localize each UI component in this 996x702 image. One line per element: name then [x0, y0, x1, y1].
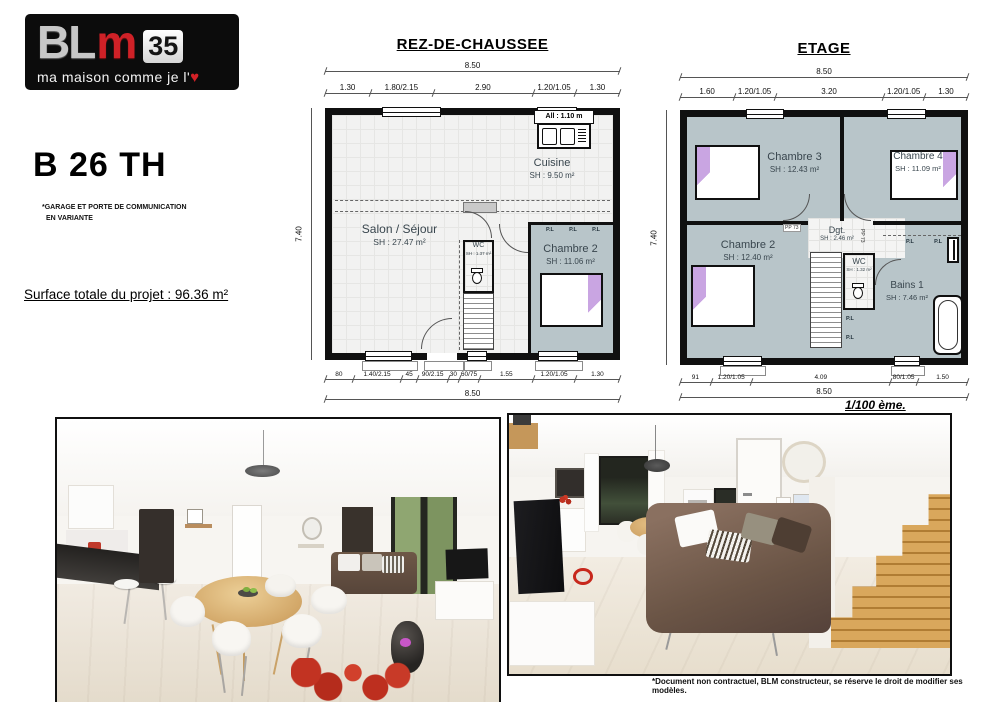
et-overall-bottom-dim: 8.50: [680, 384, 968, 398]
window: [887, 109, 926, 119]
gf-chambre2-label: Chambre 2 SH : 11.06 m²: [528, 243, 613, 267]
etage-plan: Chambre 3 SH : 12.43 m² Chambre 4 SH : 1…: [680, 110, 968, 365]
chair: [311, 586, 346, 615]
window: [365, 351, 412, 361]
et-staircase: [810, 252, 842, 348]
et-chambre2-label: Chambre 2 SH : 12.40 m²: [692, 239, 804, 263]
et-bains-label: Bains 1 SH : 7.46 m²: [867, 280, 947, 302]
placard-dashed-line: [883, 235, 961, 236]
gf-placard-labels: P.L P.L P.L: [546, 227, 600, 233]
model-note-line2: EN VARIANTE: [42, 213, 187, 224]
gf-dashed-line: [335, 200, 610, 201]
bed-pillow: [588, 275, 601, 325]
ground-floor-title: REZ-DE-CHAUSSEE: [325, 36, 620, 53]
window: [746, 109, 784, 119]
et-placard-labels: P.L P.L: [906, 239, 942, 245]
tv-cabinet: [435, 581, 494, 620]
placard-label: P.L: [846, 316, 854, 322]
lamp-wire: [655, 425, 656, 461]
et-wc-label: WC SH : 1.32 m²: [843, 257, 875, 273]
speaker-light: [400, 638, 411, 647]
et-bottom-dims: 91 1.20/1.05 4.09 80/1.05 1.50: [680, 369, 968, 383]
tv-cabinet: [509, 601, 595, 665]
logo-35-badge: 35: [143, 30, 183, 63]
curtain: [584, 453, 599, 533]
door-arc: [465, 211, 492, 238]
et-top-dims: 1.60 1.20/1.05 3.20 1.20/1.05 1.30: [680, 84, 968, 98]
kitchen-sink-icon: [537, 123, 591, 149]
white-door: [232, 505, 263, 587]
toilet-icon: [852, 283, 865, 300]
fruit: [250, 588, 257, 593]
door-handle: [743, 493, 752, 496]
wall: [873, 221, 961, 225]
kitchen-cabinet: [68, 485, 114, 530]
dark-door: [139, 509, 174, 583]
gf-cuisine-label: Cuisine SH : 9.50 m²: [492, 157, 612, 181]
photo-living-kitchen: [55, 417, 501, 702]
toilet-icon: [471, 268, 484, 285]
bed: [691, 265, 755, 327]
scale-label: 1/100 ème.: [845, 398, 906, 412]
window: [382, 107, 441, 117]
etage-title: ETAGE: [680, 40, 968, 57]
red-headphones: [573, 568, 593, 585]
gf-overall-bottom-dim: 8.50: [325, 386, 620, 400]
door-arc: [844, 194, 871, 221]
window: [894, 356, 920, 366]
wall-shelf: [509, 423, 538, 449]
bed-pillow: [693, 267, 706, 325]
door-label: PP 73: [859, 229, 865, 243]
door-label: PP 73: [783, 224, 801, 232]
logo-wordmark: BL m 35: [37, 19, 227, 63]
window: [723, 356, 762, 366]
small-window: [467, 351, 487, 361]
tv: [445, 548, 488, 579]
logo-m-letter: m: [96, 22, 137, 63]
gf-overall-top-dim: 8.50: [325, 58, 620, 72]
entrance-door-opening: [427, 353, 457, 361]
picture-frame: [187, 509, 202, 524]
entrance-door-arc: [421, 318, 452, 349]
chair: [265, 574, 296, 597]
photo-living-staircase: [507, 413, 952, 676]
disclaimer-text: *Document non contractuel, BLM construct…: [652, 677, 996, 695]
ground-floor-plan: Cuisine SH : 9.50 m² Salon / Séjour SH :…: [325, 108, 620, 360]
bed-pillow: [697, 147, 710, 198]
red-flowers: [291, 658, 415, 702]
bedroom-window: [538, 351, 578, 361]
chair: [212, 621, 252, 655]
lamp-wire: [263, 430, 264, 467]
et-height-dim: 7.40: [654, 110, 667, 365]
model-title: B 26 TH: [33, 146, 167, 185]
allege-label: All : 1.10 m: [534, 110, 594, 124]
gf-top-dims: 1.30 1.80/2.15 2.90 1.20/1.05 1.30: [325, 80, 620, 94]
chair: [170, 596, 205, 627]
ceiling-lamp: [644, 459, 670, 472]
door-arc: [783, 194, 810, 221]
dark-window: [599, 456, 649, 525]
radiator-icon: [947, 237, 959, 263]
sofa-cushion: [362, 554, 382, 571]
surface-total: Surface totale du projet : 96.36 m²: [24, 287, 228, 302]
model-note: *GARAGE ET PORTE DE COMMUNICATION EN VAR…: [42, 202, 187, 224]
chair: [282, 614, 322, 648]
model-note-line1: *GARAGE ET PORTE DE COMMUNICATION: [42, 202, 187, 213]
gf-dashed-wall: [459, 240, 460, 350]
wall-shelf: [185, 524, 212, 527]
door-arc: [499, 224, 528, 253]
logo-bl-letters: BL: [37, 22, 94, 63]
et-overall-top-dim: 8.50: [680, 64, 968, 78]
wall-mirror: [302, 517, 322, 540]
et-chambre3-label: Chambre 3 SH : 12.43 m²: [737, 151, 852, 175]
gf-wc-label: WC SH : 1.37 m²: [463, 242, 494, 256]
bathtub-icon: [933, 295, 963, 355]
fruit: [243, 587, 250, 592]
sofa-cushion: [338, 554, 360, 571]
shelf-decor: [513, 415, 531, 425]
et-chambre4-label: Chambre 4 SH : 11.09 m²: [875, 151, 961, 173]
brochure-page: BL m 35 ma maison comme je l'♥ B 26 TH *…: [0, 0, 996, 702]
bar-stool: [114, 579, 138, 589]
gf-bottom-dims: 80 1.40/2.15 45 90/2.15 30 60/75 1.55 1.…: [325, 366, 620, 380]
logo-tagline: ma maison comme je l'♥: [37, 69, 227, 86]
console-shelf: [298, 544, 325, 547]
gf-salon-label: Salon / Séjour SH : 27.47 m²: [342, 222, 457, 248]
sofa: [646, 503, 831, 633]
gf-staircase: [463, 293, 494, 350]
blm-logo: BL m 35 ma maison comme je l'♥: [25, 14, 239, 90]
heart-icon: ♥: [190, 69, 199, 86]
et-dgt-label: Dgt. SH : 2.46 m²: [807, 225, 867, 244]
placard-label: P.L: [846, 335, 854, 341]
tv: [513, 499, 564, 595]
gf-height-dim: 7.40: [299, 108, 312, 360]
bed: [540, 273, 603, 327]
striped-cushion: [382, 556, 404, 573]
